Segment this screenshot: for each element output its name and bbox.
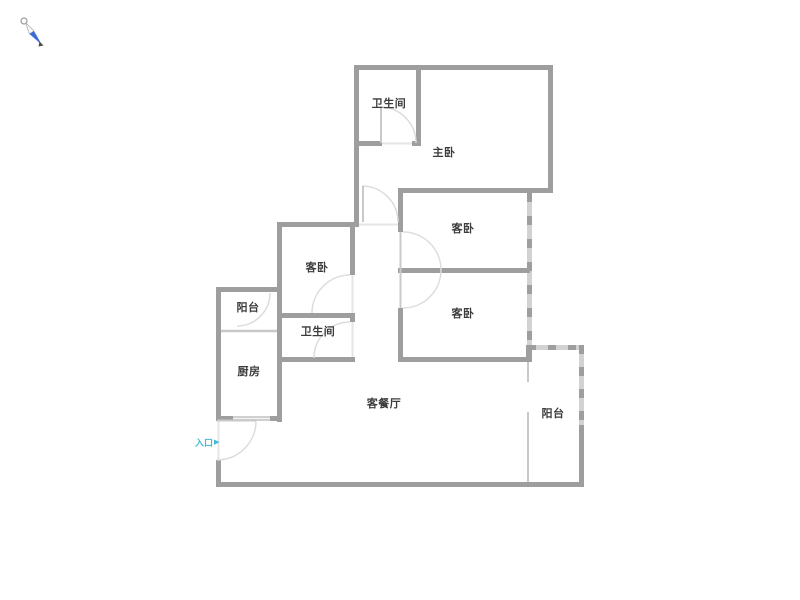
room-label-bathroom-mid: 卫生间 xyxy=(301,323,336,339)
floor-plan-canvas xyxy=(0,0,800,600)
entrance-arrow-icon: ▶ xyxy=(214,439,219,446)
room-label-living-dining: 客餐厅 xyxy=(367,395,402,411)
room-label-master-bedroom: 主卧 xyxy=(433,144,456,160)
room-label-guest-bedroom-ne: 客卧 xyxy=(452,220,475,236)
entrance-label: 入口 ▶ xyxy=(195,436,219,449)
floor-plan-page: 卫生间 主卧 客卧 客卧 客卧 阳台 卫生间 厨房 客餐厅 阳台 入口 ▶ xyxy=(0,0,800,600)
room-label-bathroom-top: 卫生间 xyxy=(372,95,407,111)
room-label-balcony-east: 阳台 xyxy=(542,405,565,421)
compass-icon xyxy=(14,12,48,50)
room-label-guest-bedroom-se: 客卧 xyxy=(452,305,475,321)
room-label-balcony-west: 阳台 xyxy=(237,299,260,315)
entrance-text: 入口 xyxy=(195,436,213,449)
room-label-kitchen: 厨房 xyxy=(238,363,261,379)
doors-layer xyxy=(217,107,441,460)
room-label-guest-bedroom-w: 客卧 xyxy=(306,259,329,275)
